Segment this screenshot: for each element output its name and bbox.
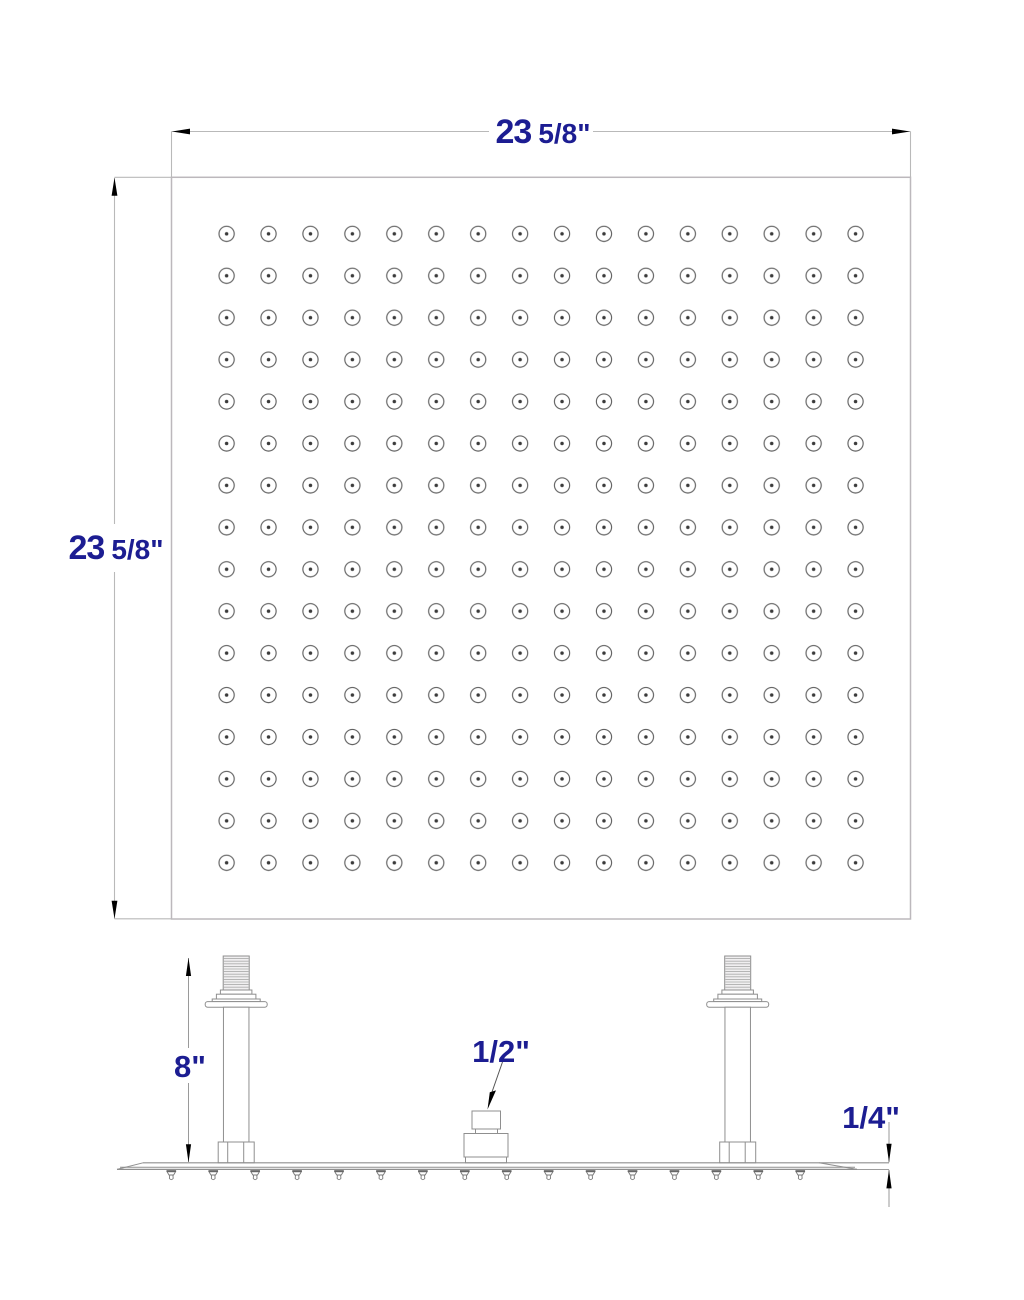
- svg-text:8": 8": [174, 1049, 206, 1084]
- svg-text:235/8": 235/8": [68, 529, 163, 567]
- svg-text:1/2": 1/2": [472, 1034, 530, 1069]
- svg-text:235/8": 235/8": [495, 113, 590, 151]
- svg-text:1/4": 1/4": [842, 1100, 900, 1135]
